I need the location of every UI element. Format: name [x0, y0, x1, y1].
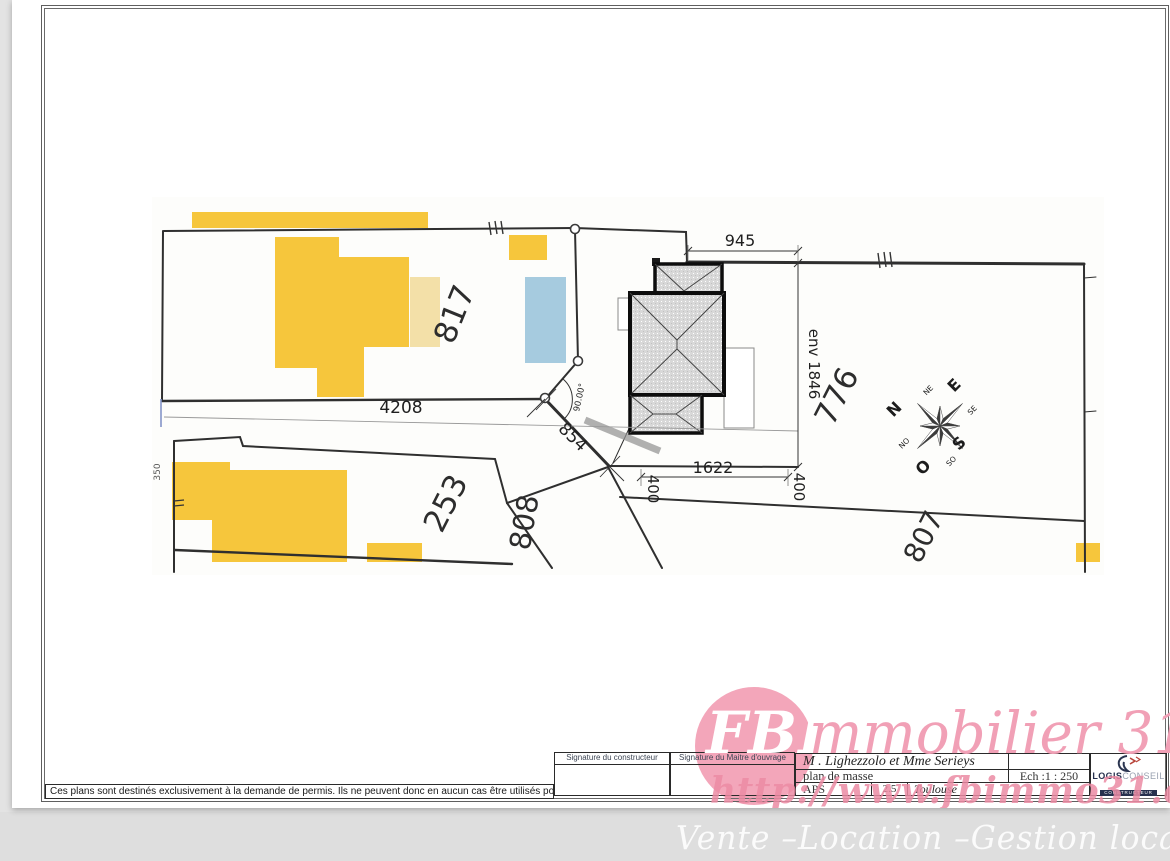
- disclaimer-text: Ces plans sont destinés exclusivement à …: [50, 786, 554, 797]
- watermark-brand-rest: mmobilier 31: [809, 704, 1170, 762]
- sheet-border: [41, 5, 1169, 802]
- signature-box-constructeur: Signature du constructeur: [554, 752, 670, 796]
- watermark-services: Vente –Location –Gestion locative: [676, 818, 1170, 858]
- watermark-url: http://www.fbimmo31.com/: [710, 772, 1170, 808]
- disclaimer-box: Ces plans sont destinés exclusivement à …: [45, 784, 554, 799]
- screenshot-root: 4208 945 1622 400 400 env 1846 854 90.00…: [0, 0, 1170, 861]
- plan-sheet: 4208 945 1622 400 400 env 1846 854 90.00…: [12, 0, 1170, 808]
- signature-left-label: Signature du constructeur: [555, 753, 669, 765]
